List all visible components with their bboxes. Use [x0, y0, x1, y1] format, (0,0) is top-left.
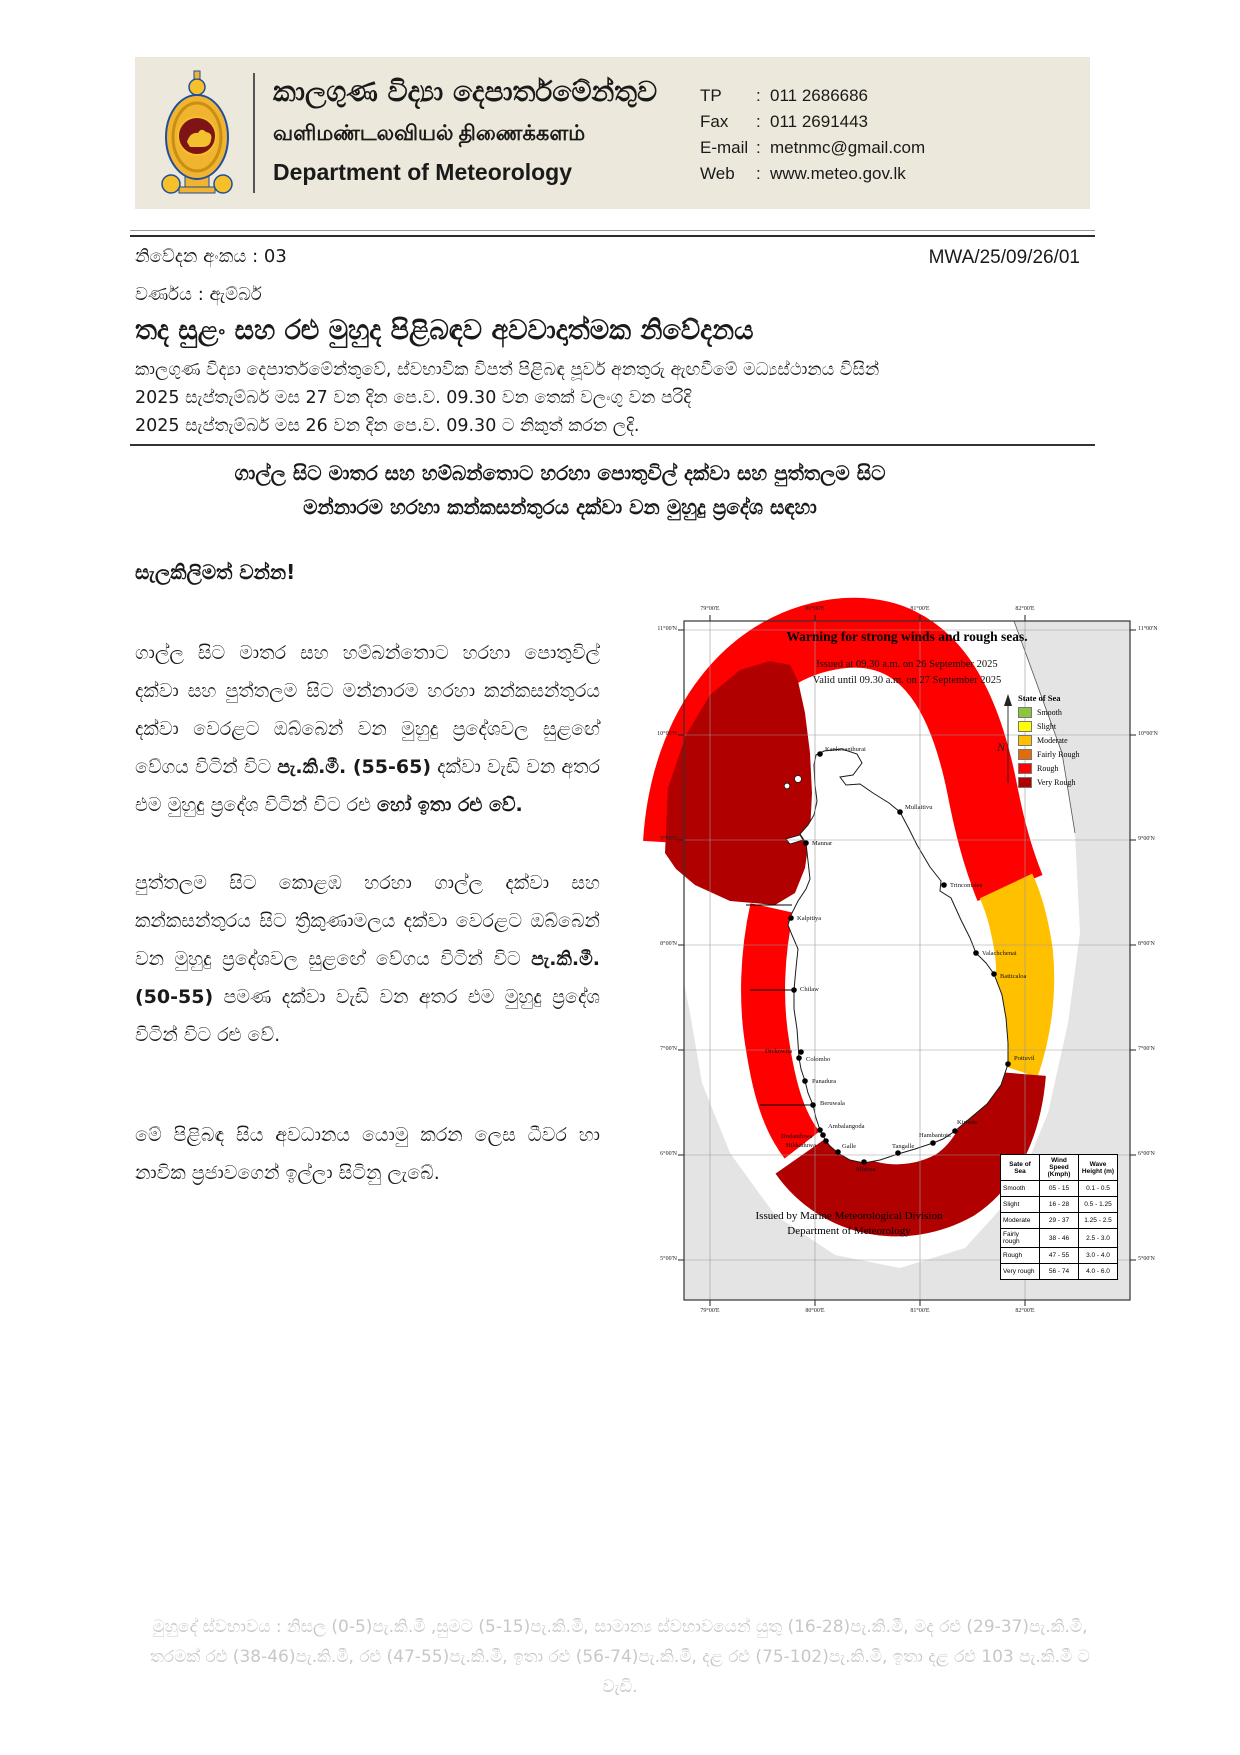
warning-color-category: වර්ණය : ඇම්බර් — [135, 284, 262, 305]
header-divider — [253, 73, 255, 193]
axis-label: 9°00'N — [646, 836, 677, 842]
header-rule — [130, 230, 1095, 237]
contact-row-tp: TP : 011 2686686 — [700, 83, 925, 109]
axis-label: 10°00'N — [1138, 731, 1169, 737]
paragraph: ගාල්ල සිට මාතර සහ හම්බන්තොට හරහා පොතුවිල… — [135, 634, 600, 824]
contact-value: metnmc@gmail.com — [770, 135, 925, 161]
axis-label: 7°00'N — [646, 1046, 677, 1052]
axis-label: 80°00'E — [795, 606, 835, 612]
axis-label: 82°00'E — [1005, 1308, 1045, 1314]
axis-label: 7°00'N — [1138, 1046, 1169, 1052]
contact-label: Web — [700, 161, 756, 187]
national-emblem-logo — [157, 67, 237, 205]
subject-line-1: ගාල්ල සිට මාතර සහ හම්බන්තොට හරහා පොතුවිල… — [135, 456, 985, 490]
notice-number: නිවේදන අංකය : 03 — [135, 246, 287, 267]
axis-label: 6°00'N — [1138, 1151, 1169, 1157]
axis-label: 79°00'E — [690, 606, 730, 612]
axis-label: 80°00'E — [795, 1308, 835, 1314]
contact-value: 011 2691443 — [770, 109, 868, 135]
contact-value: 011 2686686 — [770, 83, 868, 109]
axis-label: 8°00'N — [646, 941, 677, 947]
axis-label: 79°00'E — [690, 1308, 730, 1314]
contact-label: TP — [700, 83, 756, 109]
contact-value: www.meteo.gov.lk — [770, 161, 906, 187]
document-page: කාලගුණ විද්‍යා දෙපාර්තමේන්තුව வளிமண்டலவி… — [0, 0, 1240, 1755]
axis-label: 81°00'E — [900, 1308, 940, 1314]
footer-note: මුහුදේ ස්වභාවය : නිසල (0-5)පැ.කි.මී ,සුම… — [150, 1612, 1090, 1702]
dept-title-sinhala: කාලගුණ විද්‍යා දෙපාර්තමේන්තුව — [273, 75, 657, 109]
axis-label: 10°00'N — [646, 731, 677, 737]
issuer-line: කාලගුණ විද්‍යා දෙපාර්තමේන්තුවේ, ස්වභාවික… — [135, 360, 879, 380]
contact-separator: : — [756, 161, 770, 187]
contact-label: Fax — [700, 109, 756, 135]
contact-row-email: E-mail : metnmc@gmail.com — [700, 135, 925, 161]
valid-until-line: 2025 සැප්තැම්බර් මස 27 වන දින පෙ.ව. 09.3… — [135, 388, 691, 408]
dept-title-english: Department of Meteorology — [273, 159, 572, 186]
contact-row-fax: Fax : 011 2691443 — [700, 109, 925, 135]
contact-row-web: Web : www.meteo.gov.lk — [700, 161, 925, 187]
contact-separator: : — [756, 83, 770, 109]
reference-number: MWA/25/09/26/01 — [929, 247, 1080, 269]
warning-title: තද සුළං සහ රළු මුහුද පිළිබඳව අවවාදාත්මක … — [135, 315, 754, 347]
map-axes: 79°00'E79°00'E80°00'E80°00'E81°00'E81°00… — [610, 553, 1166, 1321]
contact-block: TP : 011 2686686 Fax : 011 2691443 E-mai… — [700, 83, 925, 187]
axis-label: 81°00'E — [900, 606, 940, 612]
contact-label: E-mail — [700, 135, 756, 161]
body-paragraphs: ගාල්ල සිට මාතර සහ හම්බන්තොට හරහා පොතුවිල… — [135, 634, 600, 1232]
axis-label: 6°00'N — [646, 1151, 677, 1157]
axis-label: 11°00'N — [646, 626, 677, 632]
section-rule — [130, 444, 1095, 446]
paragraph: පුත්තලම සිට කොළඹ හරහා ගාල්ල දක්වා සහ කන්… — [135, 864, 600, 1054]
header-box: කාලගුණ විද්‍යා දෙපාර්තමේන්තුව வளிமண்டலவி… — [135, 57, 1090, 209]
dept-title-tamil: வளிமண்டலவியல் திணைக்களம் — [273, 121, 585, 148]
axis-label: 8°00'N — [1138, 941, 1169, 947]
axis-label: 5°00'N — [646, 1256, 677, 1262]
subject-line-2: මන්නාරම හරහා කන්කසන්තුරය දක්වා වන මුහුදු… — [135, 490, 985, 524]
axis-label: 82°00'E — [1005, 606, 1045, 612]
contact-separator: : — [756, 109, 770, 135]
subject-block: ගාල්ල සිට මාතර සහ හම්බන්තොට හරහා පොතුවිල… — [135, 456, 985, 524]
attention-heading: සැලකිලිමත් වන්න! — [135, 560, 295, 584]
axis-label: 5°00'N — [1138, 1256, 1169, 1262]
issued-at-line: 2025 සැප්තැම්බර් මස 26 වන දින පෙ.ව. 09.3… — [135, 416, 639, 436]
axis-label: 9°00'N — [1138, 836, 1169, 842]
contact-separator: : — [756, 135, 770, 161]
paragraph: මේ පිළිබඳ සිය අවධානය යොමු කරන ලෙස ධීවර හ… — [135, 1116, 600, 1192]
map-figure: N KankesanthuraiMullaitivuMannarKalpitiy… — [610, 553, 1166, 1321]
axis-label: 11°00'N — [1138, 626, 1169, 632]
